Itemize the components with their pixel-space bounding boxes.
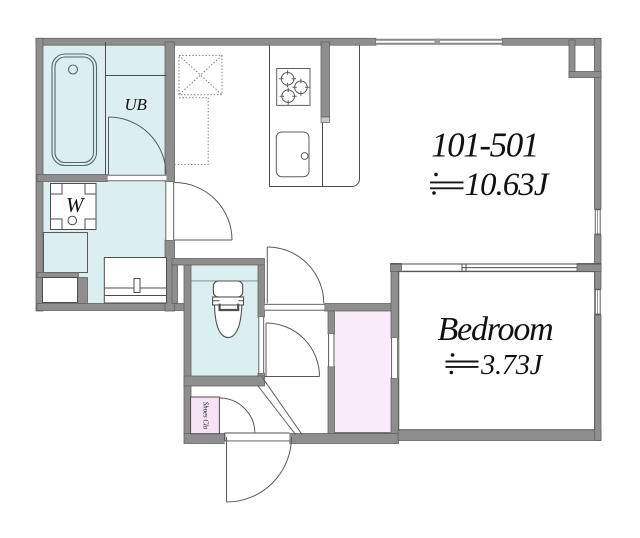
svg-text:UB: UB bbox=[124, 95, 147, 114]
svg-text:10.63J: 10.63J bbox=[465, 167, 550, 203]
svg-text:101-501: 101-501 bbox=[431, 126, 538, 165]
svg-text:W: W bbox=[66, 193, 86, 217]
svg-text:Bedroom: Bedroom bbox=[438, 311, 554, 348]
svg-text:3.73J: 3.73J bbox=[480, 350, 544, 381]
svg-text:Shoes Clo: Shoes Clo bbox=[201, 402, 208, 430]
